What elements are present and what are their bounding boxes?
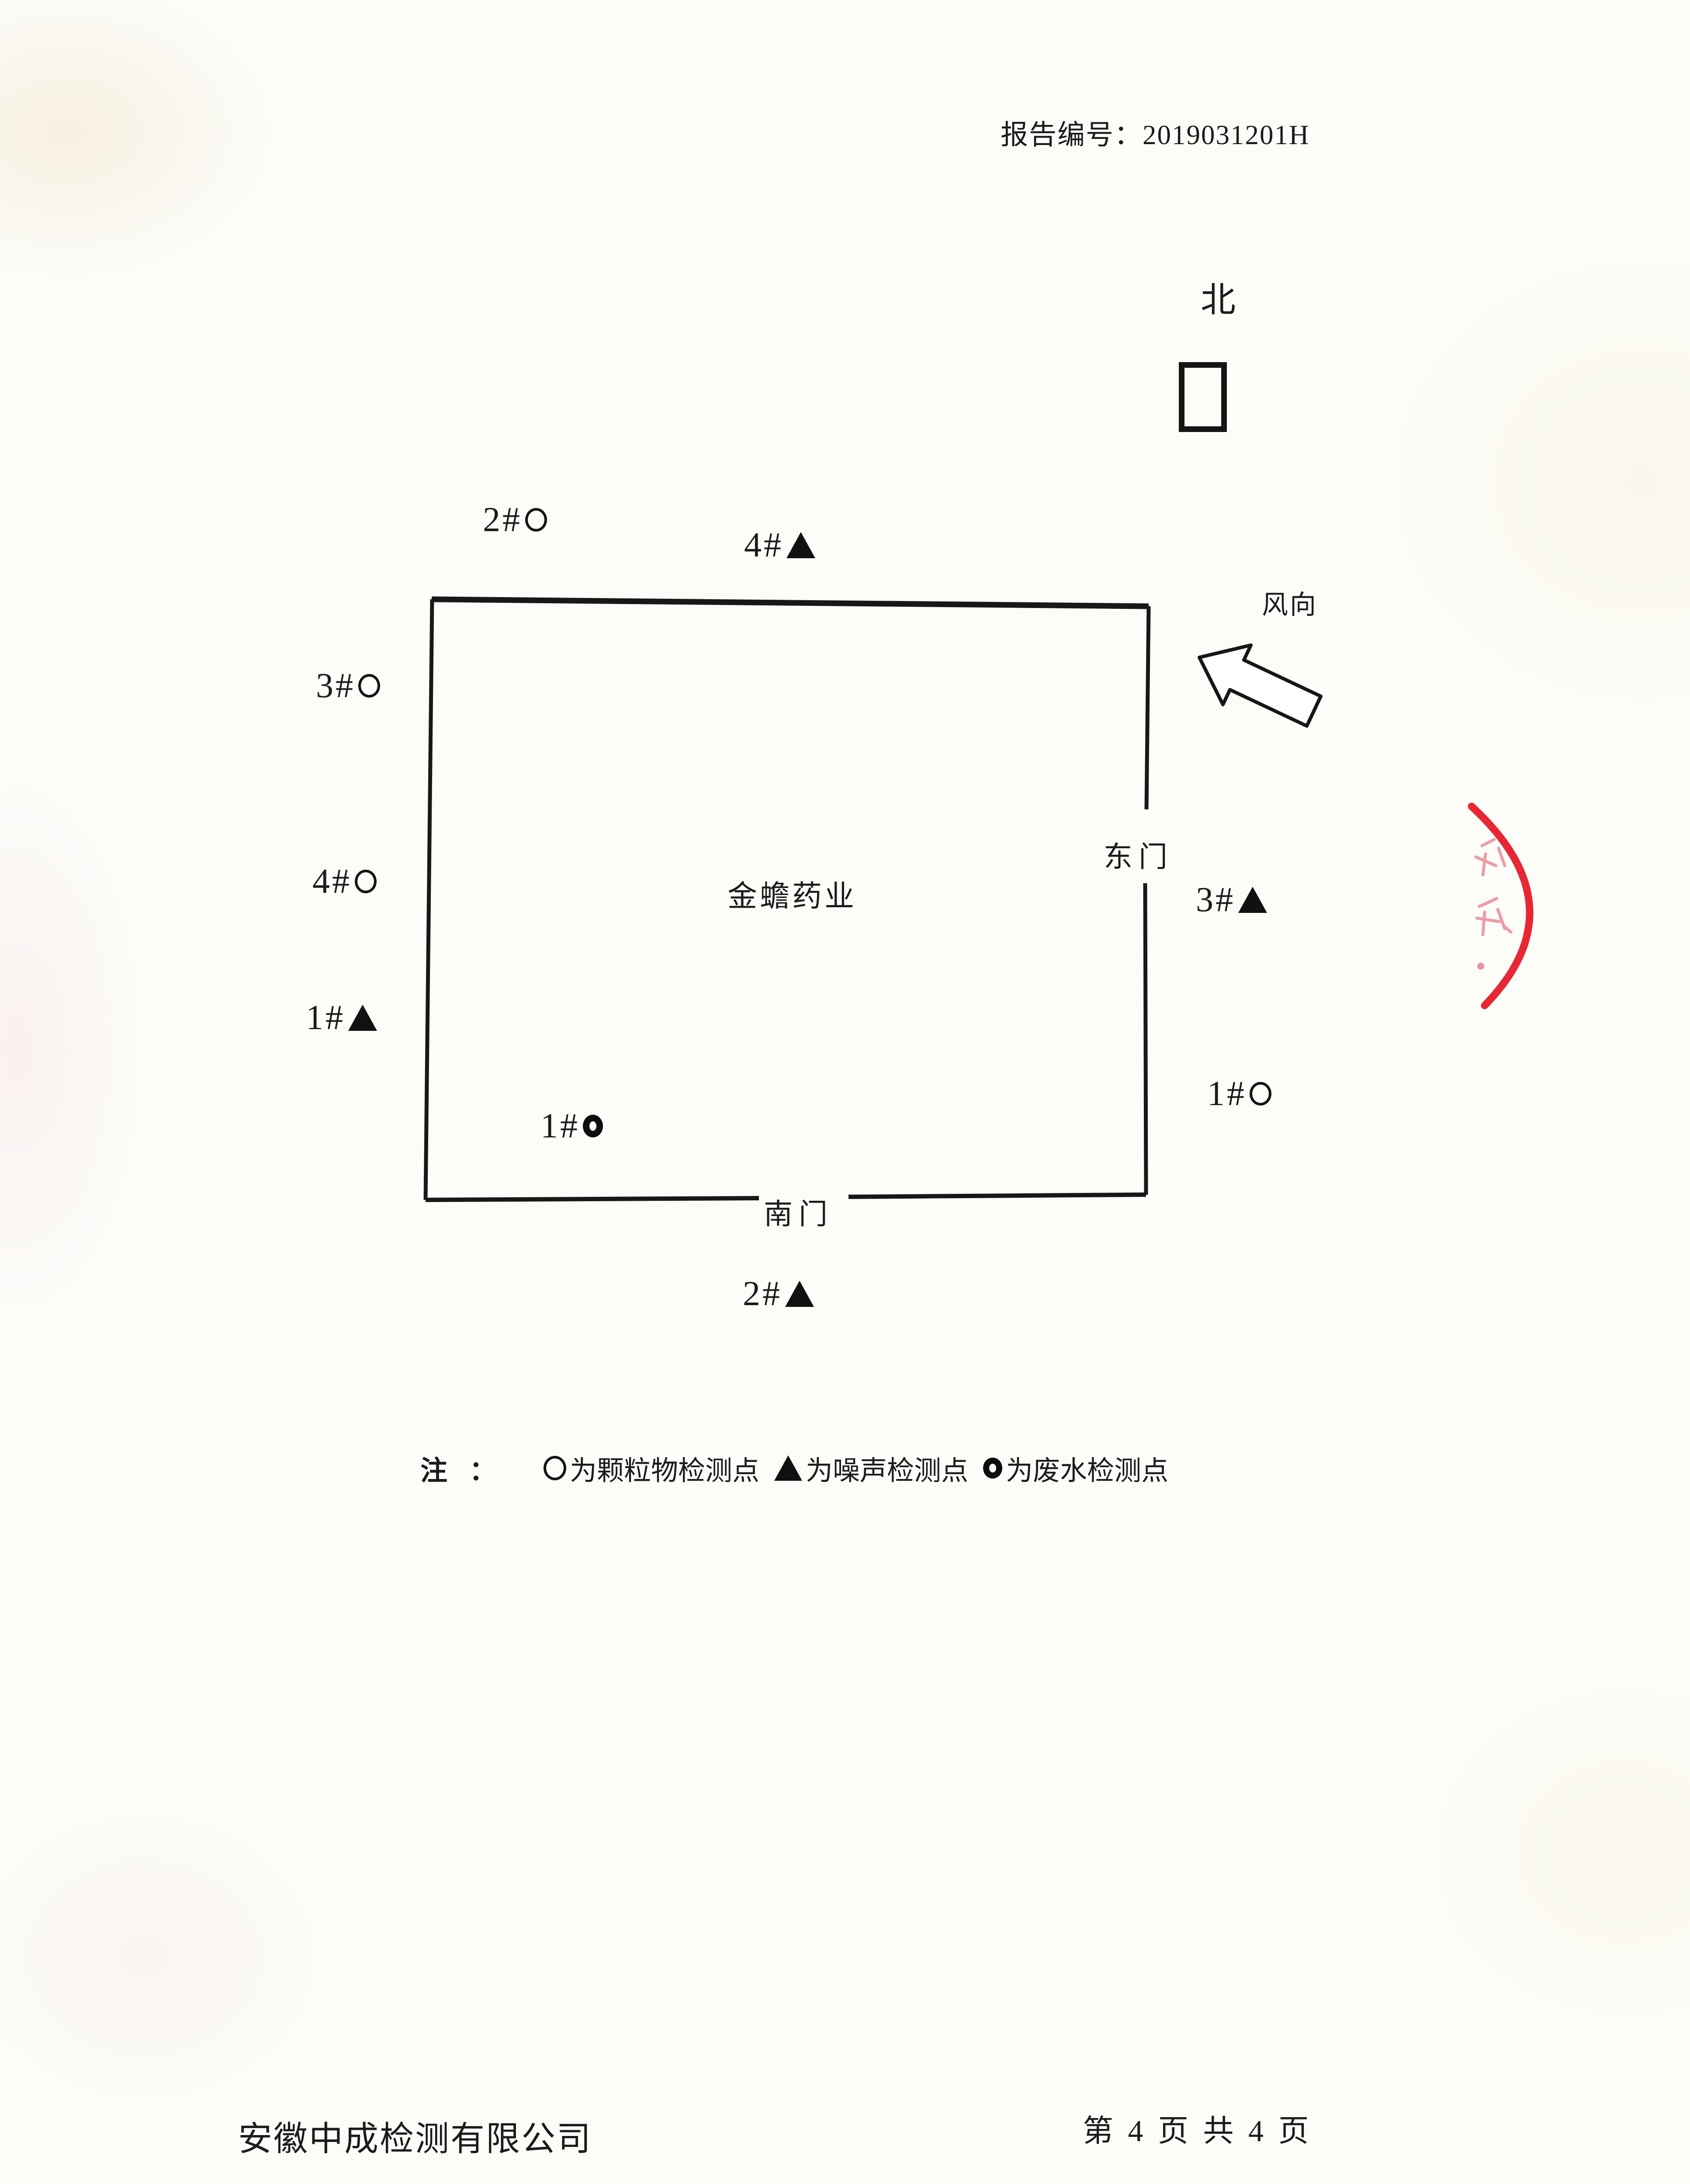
stamp-dot: [1477, 963, 1484, 970]
particulate-point-icon: [525, 508, 547, 532]
noise-point-icon: [774, 1455, 802, 1481]
note-label: 注: [420, 1448, 447, 1488]
marker-wastewater-1: 1#: [540, 1109, 603, 1144]
marker-label: 3#: [316, 668, 355, 703]
north-label: 北: [1201, 272, 1236, 322]
wind-direction-label: 风向: [1262, 584, 1318, 622]
report-number: 报告编号：2019031201H: [1001, 113, 1310, 152]
marker-noise-4: 4#: [744, 528, 815, 563]
footer-company-name: 安徽中成检测有限公司: [238, 2111, 592, 2160]
marker-label: 1#: [1207, 1076, 1247, 1111]
marker-noise-2: 2#: [743, 1276, 814, 1311]
noise-point-icon: [1238, 887, 1267, 913]
legend-item-particulate: 为颗粒物检测点: [544, 1448, 759, 1488]
marker-label: 2#: [743, 1276, 782, 1311]
marker-label: 2#: [483, 502, 522, 537]
legend-item-wastewater: 为废水检测点: [983, 1448, 1168, 1488]
scanned-report-page: 报告编号：2019031201H 北 风向 金蟾药业 东门 南门 2# 4# 3…: [0, 0, 1690, 2184]
marker-particulate-2: 2#: [483, 502, 547, 537]
marker-label: 4#: [744, 528, 783, 563]
stamp-marks: [1476, 840, 1511, 935]
legend-note: 注 ： 为颗粒物检测点 为噪声检测点 为废水检测点: [420, 1448, 1183, 1488]
particulate-point-icon: [544, 1456, 566, 1480]
east-gate-label: 东门: [1104, 833, 1174, 875]
particulate-point-icon: [1250, 1082, 1271, 1106]
particulate-point-icon: [355, 870, 377, 893]
legend-text: 为废水检测点: [1006, 1448, 1168, 1488]
legend-text: 为颗粒物检测点: [570, 1448, 759, 1488]
marker-label: 1#: [540, 1109, 580, 1144]
marker-label: 3#: [1196, 882, 1235, 917]
building-label: 金蟾药业: [727, 872, 857, 915]
legend-item-noise: 为噪声检测点: [774, 1448, 968, 1488]
note-colon: ：: [469, 1448, 496, 1488]
legend-text: 为噪声检测点: [806, 1448, 968, 1488]
footer-page-info: 第 4 页 共 4 页: [1083, 2106, 1313, 2150]
wind-arrow-icon: [1199, 645, 1321, 726]
noise-point-icon: [786, 532, 815, 558]
marker-label: 1#: [306, 1000, 345, 1035]
wastewater-point-icon: [583, 1115, 603, 1137]
marker-particulate-4: 4#: [312, 864, 377, 899]
particulate-point-icon: [358, 674, 380, 698]
north-marker-square: [1179, 362, 1227, 432]
marker-label: 4#: [312, 864, 352, 899]
noise-point-icon: [348, 1005, 377, 1031]
south-gate-label: 南门: [764, 1191, 834, 1233]
marker-noise-1: 1#: [306, 1000, 377, 1035]
marker-particulate-1: 1#: [1207, 1076, 1271, 1111]
marker-particulate-3: 3#: [316, 668, 380, 703]
wastewater-point-icon: [983, 1458, 1002, 1479]
marker-noise-3: 3#: [1196, 882, 1267, 917]
noise-point-icon: [785, 1281, 814, 1307]
site-diagram-linework: [0, 0, 1690, 2184]
red-stamp-arc-icon: [1472, 806, 1530, 1006]
